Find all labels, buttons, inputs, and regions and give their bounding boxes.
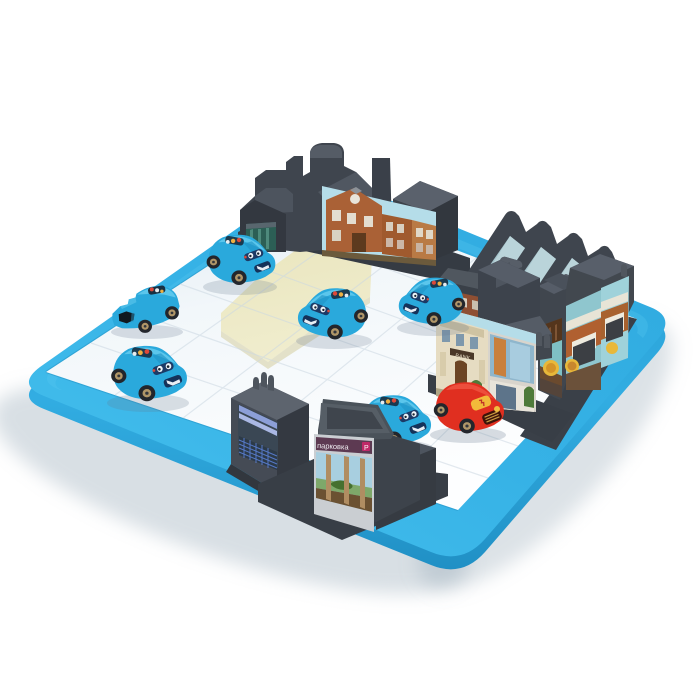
- svg-text:P: P: [364, 445, 369, 452]
- svg-text:парковка: парковка: [317, 441, 350, 452]
